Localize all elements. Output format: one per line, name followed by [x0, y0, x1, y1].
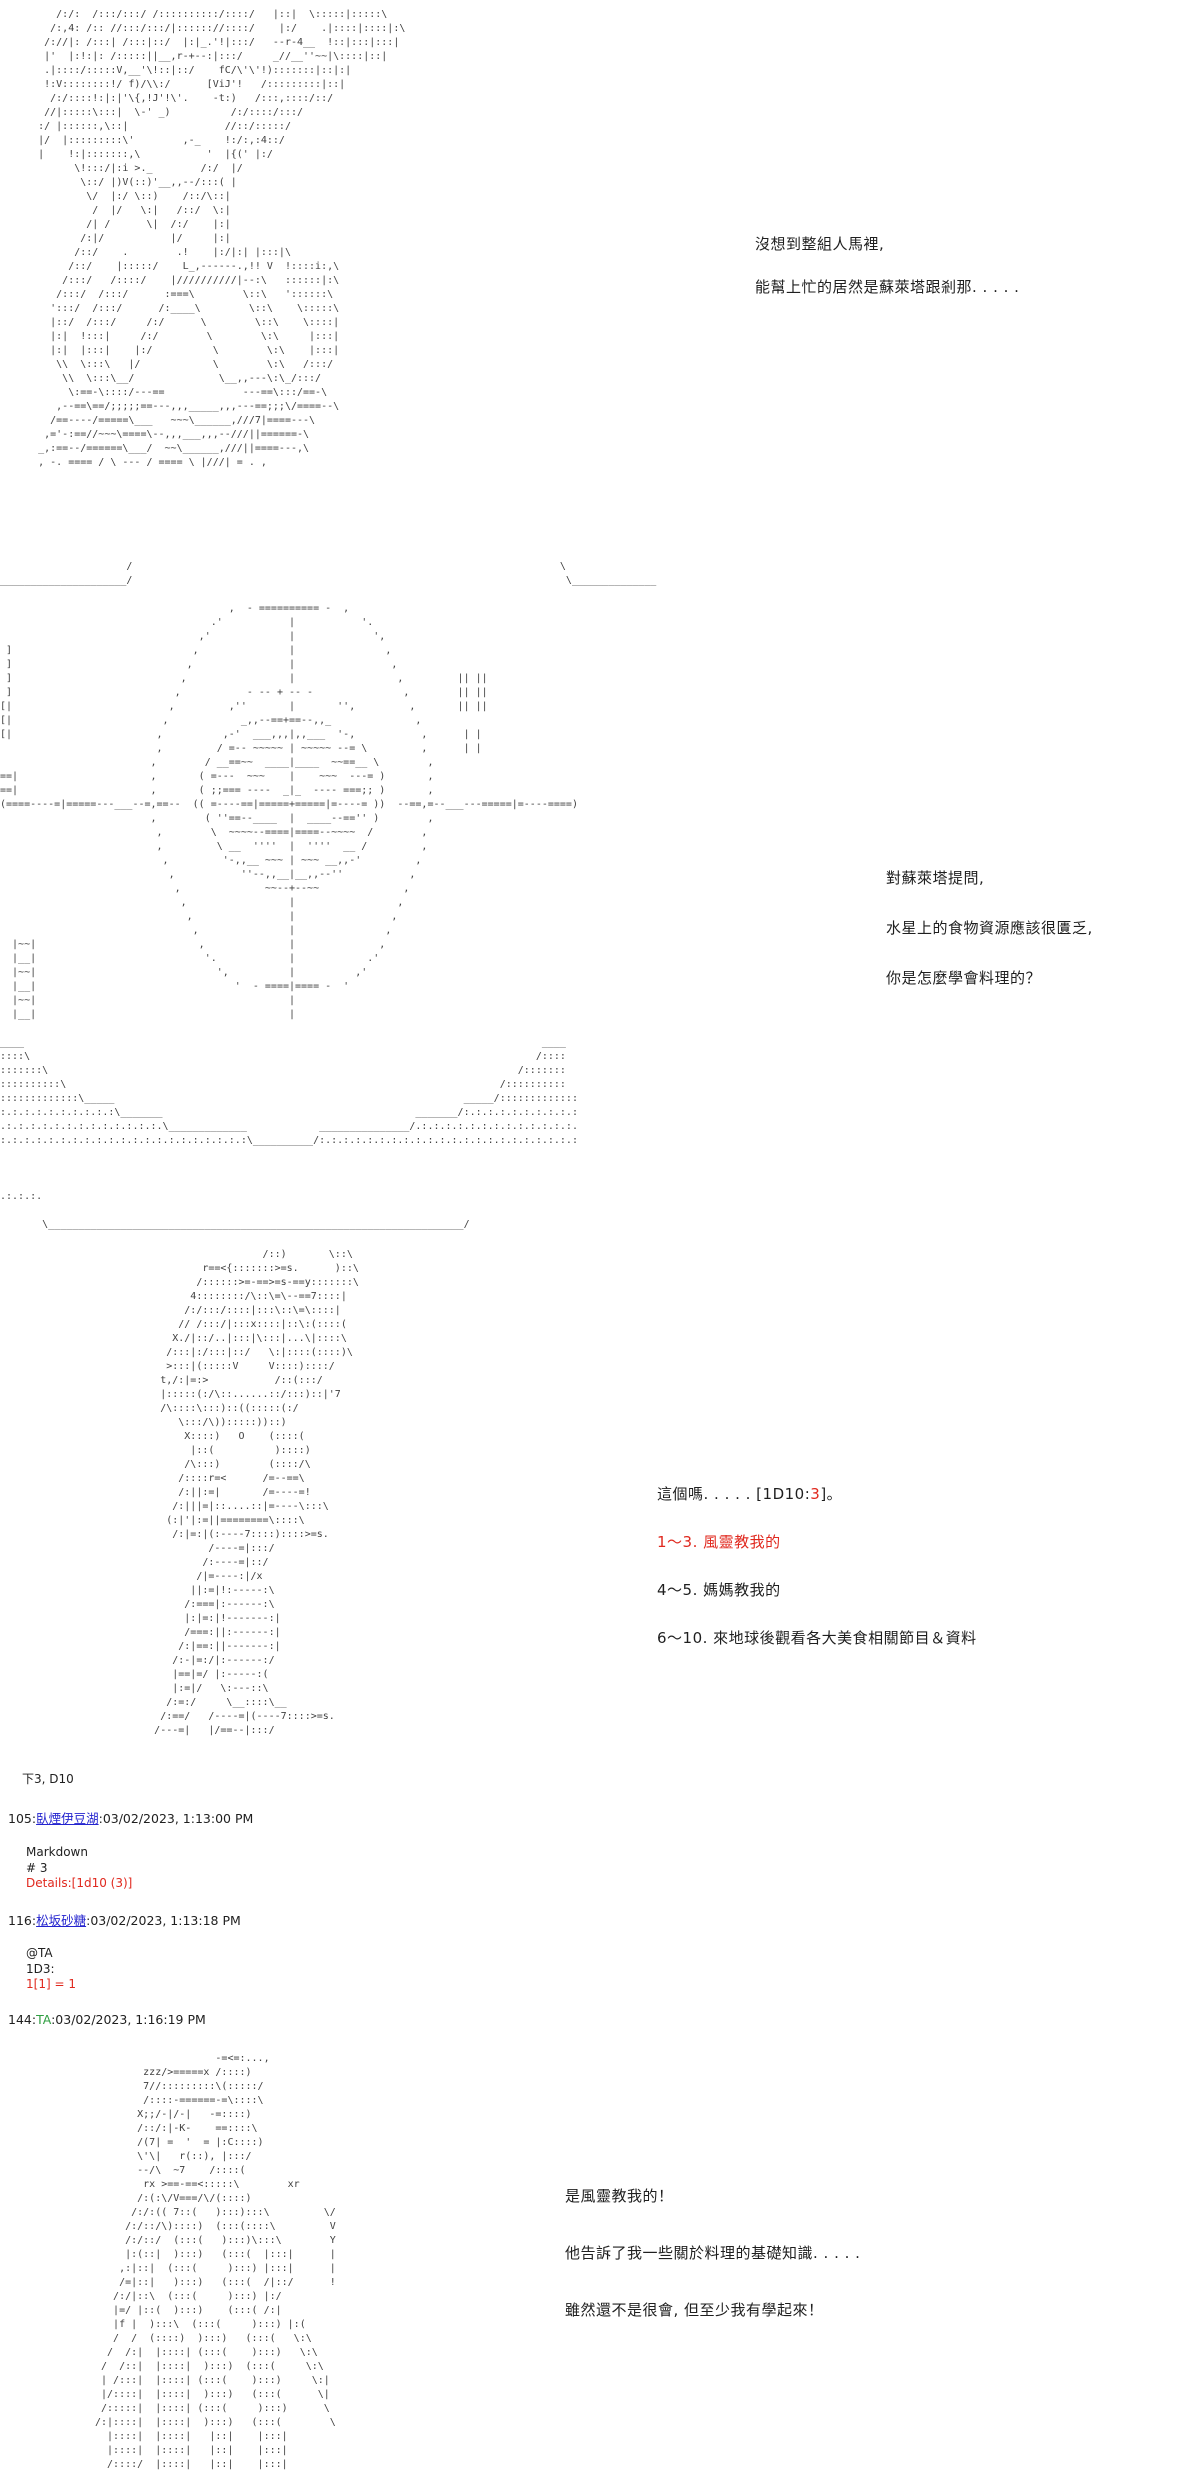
- post-body-105: Markdown # 3 Details:[1d10 (3)]: [26, 1845, 132, 1892]
- ascii-art-suletta-answer: /::) \::\ r==<{:::::::>=s. )::\ /::::::>…: [100, 1248, 359, 1738]
- dice-option-1-selected: 1～3. 風靈教我的: [657, 1534, 977, 1551]
- dialogue-reply-line-2: 他告訴了我一些關於料理的基礎知識. . . . .: [565, 2245, 860, 2262]
- dialogue-reply-line-3: 雖然還不是很會, 但至少我有學起來！: [565, 2302, 860, 2319]
- dice-option-2: 4～5. 媽媽教我的: [657, 1582, 977, 1599]
- dialogue-narrator: 沒想到整組人馬裡, 能幫上忙的居然是蘇萊塔跟剎那. . . . .: [755, 236, 1019, 322]
- dice-option-3: 6～10. 來地球後觀看各大美食相關節目＆資料: [657, 1630, 977, 1647]
- post-header-105: 105:臥煙伊豆湖:03/02/2023, 1:13:00 PM: [8, 1808, 253, 1827]
- dice-roll-intro-prefix: 這個嗎. . . . . [1D10:: [657, 1485, 810, 1503]
- post-105-line-details: Details:[1d10 (3)]: [26, 1876, 132, 1892]
- dialogue-reply-line-1: 是風靈教我的！: [565, 2188, 860, 2205]
- post-116-number: 116:: [8, 1913, 36, 1928]
- thread-page: { "colors": { "background": "#ffffff", "…: [0, 0, 1200, 2473]
- post-105-number: 105:: [8, 1811, 36, 1826]
- dice-roll-intro: 這個嗎. . . . . [1D10:3]。: [657, 1486, 977, 1503]
- dice-note: 下3, D10: [22, 1770, 74, 1787]
- post-144-timestamp: 03/02/2023, 1:16:19 PM: [55, 2012, 205, 2027]
- post-body-116: @TA 1D3: 1[1] = 1: [26, 1946, 76, 1993]
- dialogue-question-line-3: 你是怎麼學會料理的？: [886, 970, 1093, 987]
- dice-roll-value: 3: [810, 1485, 820, 1503]
- post-header-116: 116:松坂砂糖:03/02/2023, 1:13:18 PM: [8, 1910, 241, 1929]
- post-116-timestamp: 03/02/2023, 1:13:18 PM: [90, 1913, 240, 1928]
- post-105-line-markdown: Markdown: [26, 1845, 132, 1861]
- dialogue-narrator-line-1: 沒想到整組人馬裡,: [755, 236, 1019, 253]
- ascii-art-suletta-talking: -=<=:..., zzz/>=====x /::::) 7//::::::::…: [95, 2052, 336, 2472]
- post-116-line-dice: 1D3:: [26, 1962, 76, 1978]
- dialogue-question-line-2: 水星上的食物資源應該很匱乏,: [886, 920, 1093, 937]
- post-105-timestamp: 03/02/2023, 1:13:00 PM: [103, 1811, 253, 1826]
- post-105-author-link[interactable]: 臥煙伊豆湖: [36, 1811, 99, 1826]
- dialogue-question: 對蘇萊塔提問, 水星上的食物資源應該很匱乏, 你是怎麼學會料理的？: [886, 870, 1093, 1020]
- post-144-author-system: TA: [36, 2012, 51, 2027]
- ascii-art-narrator-character: /:/: /:::/:::/ /::::::::::/::::/ |::| \:…: [8, 8, 405, 470]
- dialogue-dice-roll: 這個嗎. . . . . [1D10:3]。 1～3. 風靈教我的 4～5. 媽…: [657, 1486, 977, 1678]
- post-116-line-mention: @TA: [26, 1946, 76, 1962]
- dialogue-suletta-reply: 是風靈教我的！ 他告訴了我一些關於料理的基礎知識. . . . . 雖然還不是很…: [565, 2188, 860, 2359]
- ascii-art-mercury-planet: / \ _____________________/ \____________…: [0, 560, 656, 1232]
- post-105-line-result: # 3: [26, 1861, 132, 1877]
- dialogue-question-line-1: 對蘇萊塔提問,: [886, 870, 1093, 887]
- dialogue-narrator-line-2: 能幫上忙的居然是蘇萊塔跟剎那. . . . .: [755, 279, 1019, 296]
- post-144-number: 144:: [8, 2012, 36, 2027]
- post-header-144: 144:TA:03/02/2023, 1:16:19 PM: [8, 2012, 206, 2027]
- dice-roll-intro-suffix: ]。: [820, 1485, 842, 1503]
- post-116-line-result: 1[1] = 1: [26, 1977, 76, 1993]
- post-116-author-link[interactable]: 松坂砂糖: [36, 1913, 86, 1928]
